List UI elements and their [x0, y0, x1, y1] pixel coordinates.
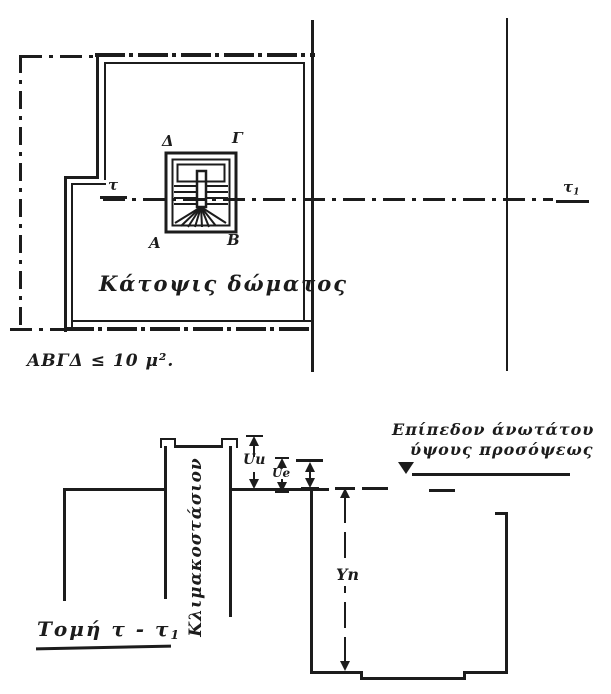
shaft-floor-1	[310, 671, 363, 674]
plan-wall-left-upper-outer	[96, 53, 99, 179]
section-title: Τομή τ - τ1	[37, 617, 181, 642]
plan-wall-step-inner	[71, 183, 106, 185]
plan-wall-top-inner	[104, 62, 305, 64]
plan-wall-step-outer	[64, 176, 99, 179]
plan-area-note: ΑΒΓΔ ≤ 10 μ².	[27, 351, 174, 371]
section-mark-tau1: τ1	[563, 178, 580, 197]
dim-ue-label: Ue	[272, 466, 290, 480]
dim-yn-bottom-arrow	[340, 661, 350, 671]
section-left-wall	[63, 488, 66, 601]
stair-landing	[178, 165, 225, 182]
shaft-floor-3	[463, 671, 508, 674]
roof-level-dash-a	[362, 487, 388, 490]
dim-parapet-bottom-tick	[301, 487, 319, 489]
facade-alignment-line	[506, 18, 508, 371]
stair-newel	[197, 171, 206, 207]
stair-winder-fan	[175, 207, 226, 227]
shaft-right-wall	[505, 512, 508, 674]
max-height-level-line	[412, 473, 570, 476]
shaft-floor-2	[360, 677, 466, 680]
stairwell-section-label: Κλιμακοστάσιον	[186, 452, 210, 642]
section-mark-tau-underline	[100, 196, 127, 199]
dim-uu-bottom-tick	[246, 488, 263, 490]
roof-level-dash-b	[429, 489, 455, 492]
plan-wall-bottom-inner	[71, 320, 311, 322]
dim-yn-label: Yn	[333, 563, 362, 586]
shaft-left-wall	[310, 488, 313, 674]
plan-wall-left-lower-inner	[71, 183, 73, 329]
tower-right-wall	[229, 446, 232, 617]
plan-wall-top-outer	[95, 53, 315, 57]
boundary-dashdot-bottom-ext	[10, 328, 64, 331]
dim-uu-label: Uu	[243, 452, 265, 468]
tower-parapet-left	[160, 438, 176, 448]
stair-corner-label-gamma: Γ	[232, 129, 243, 147]
section-mark-tau: τ	[108, 176, 118, 194]
section-left-roof	[63, 488, 167, 491]
stair-corner-label-beta: Β	[227, 231, 240, 249]
tower-left-wall	[164, 446, 167, 599]
stair-treads	[174, 186, 228, 204]
level-note-line2: ύψους προσόψεως	[410, 440, 594, 459]
level-note-line1: Επίπεδον άνωτάτου	[392, 420, 594, 439]
boundary-dashdot-top	[20, 55, 98, 58]
stairwell-plan	[163, 150, 239, 236]
section-mark-tau1-underline	[556, 200, 589, 203]
level-marker-icon	[398, 462, 414, 474]
plan-wall-left-upper-inner	[104, 62, 106, 180]
dim-ue-bottom-tick	[275, 491, 289, 493]
stair-corner-label-delta: Δ	[162, 132, 174, 150]
drawing-sheet: Δ Γ Α Β τ τ1 Κάτοψις δώματος ΑΒΓΔ ≤ 10 μ…	[0, 0, 611, 694]
plan-title: Κάτοψις δώματος	[99, 271, 348, 296]
plan-wall-bottom-outer	[64, 327, 314, 331]
shaft-right-wall-top-tick	[495, 512, 508, 515]
stair-corner-label-alpha: Α	[149, 234, 161, 252]
plan-wall-right-outer	[311, 20, 314, 372]
boundary-dashdot-left	[19, 55, 22, 332]
section-title-underline	[36, 645, 171, 651]
plan-wall-left-lower-outer	[64, 176, 67, 332]
